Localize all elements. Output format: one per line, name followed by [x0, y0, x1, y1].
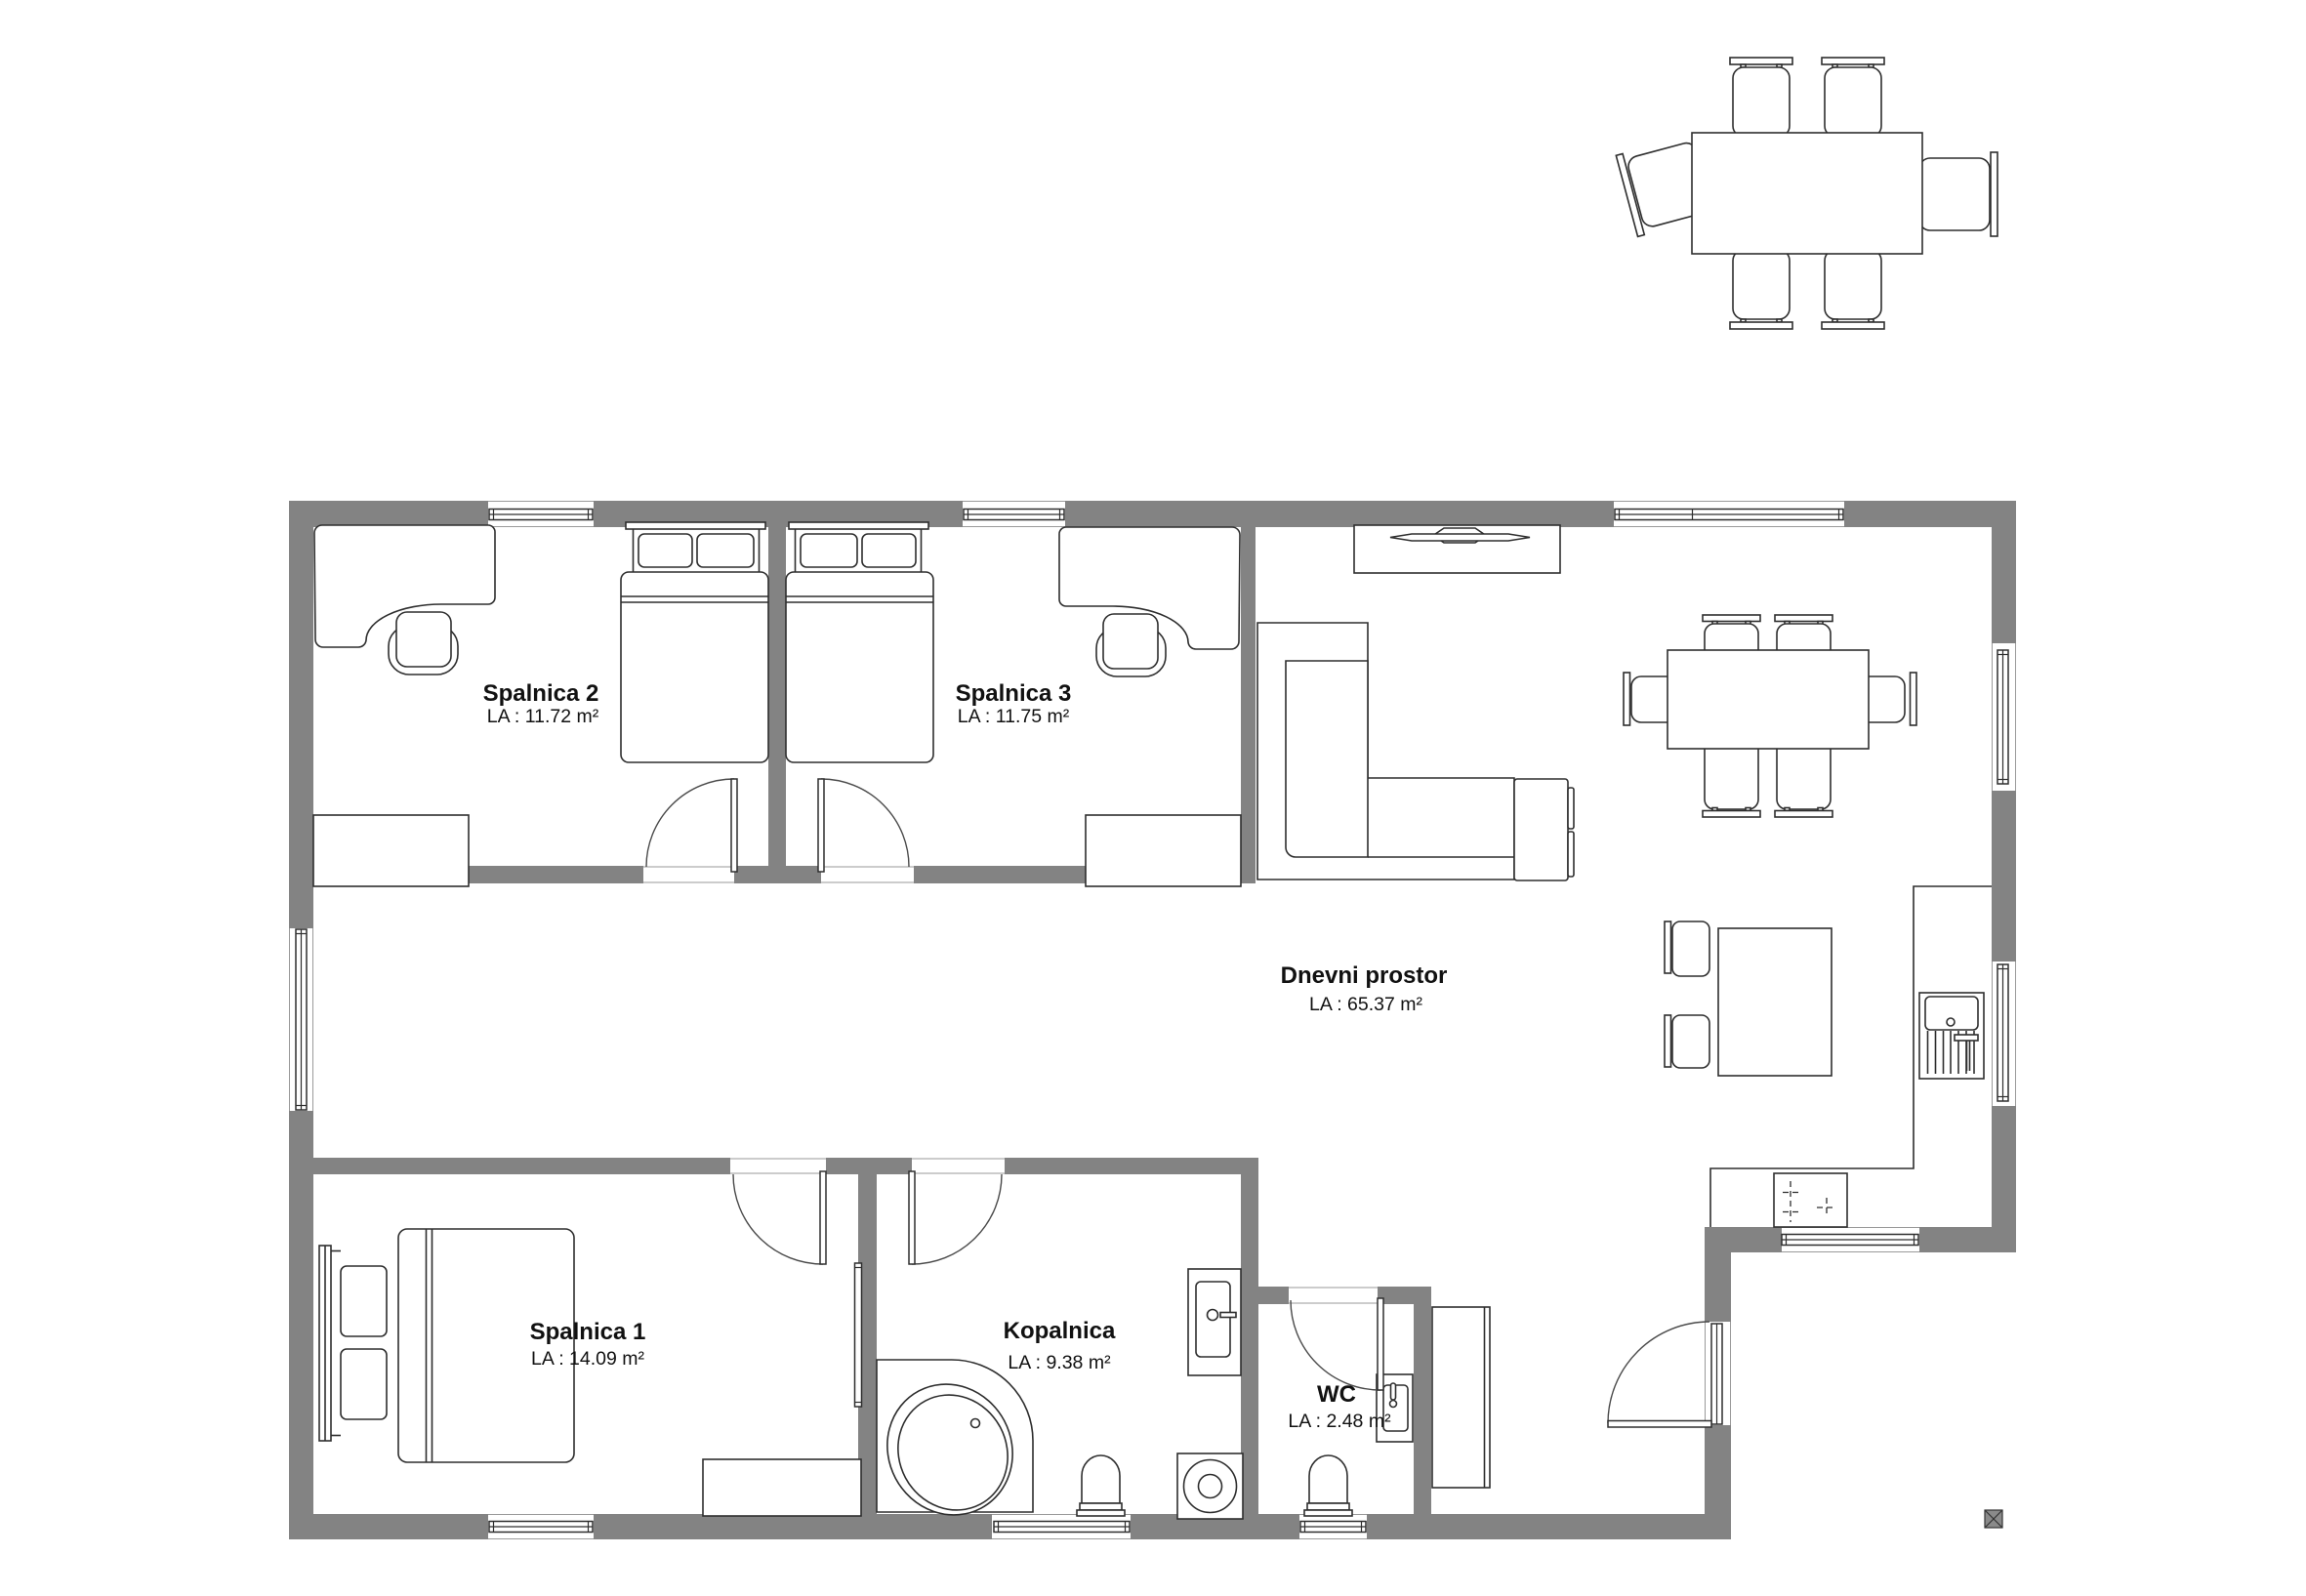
svg-text:LA : 65.37 m²: LA : 65.37 m²: [1309, 994, 1422, 1015]
svg-text:Spalnica 2: Spalnica 2: [483, 680, 599, 707]
svg-text:LA : 14.09 m²: LA : 14.09 m²: [531, 1348, 644, 1370]
svg-text:LA : 11.72 m²: LA : 11.72 m²: [487, 706, 599, 727]
svg-text:Kopalnica: Kopalnica: [1004, 1318, 1116, 1344]
svg-text:LA : 11.75 m²: LA : 11.75 m²: [958, 706, 1070, 727]
svg-text:LA : 2.48 m²: LA : 2.48 m²: [1288, 1411, 1391, 1432]
svg-text:Dnevni prostor: Dnevni prostor: [1281, 962, 1448, 989]
svg-text:WC: WC: [1317, 1381, 1356, 1408]
svg-text:Spalnica 1: Spalnica 1: [530, 1319, 646, 1345]
svg-text:Spalnica 3: Spalnica 3: [956, 680, 1072, 707]
svg-text:LA : 9.38 m²: LA : 9.38 m²: [1008, 1352, 1111, 1373]
